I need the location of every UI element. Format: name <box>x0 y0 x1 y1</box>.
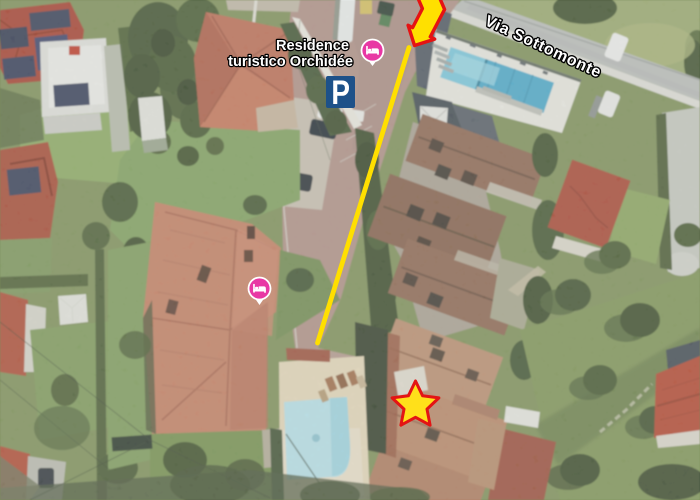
svg-text:turistico Orchidée: turistico Orchidée <box>228 54 353 70</box>
svg-text:Residence: Residence <box>276 38 349 54</box>
svg-text:P: P <box>331 73 350 111</box>
